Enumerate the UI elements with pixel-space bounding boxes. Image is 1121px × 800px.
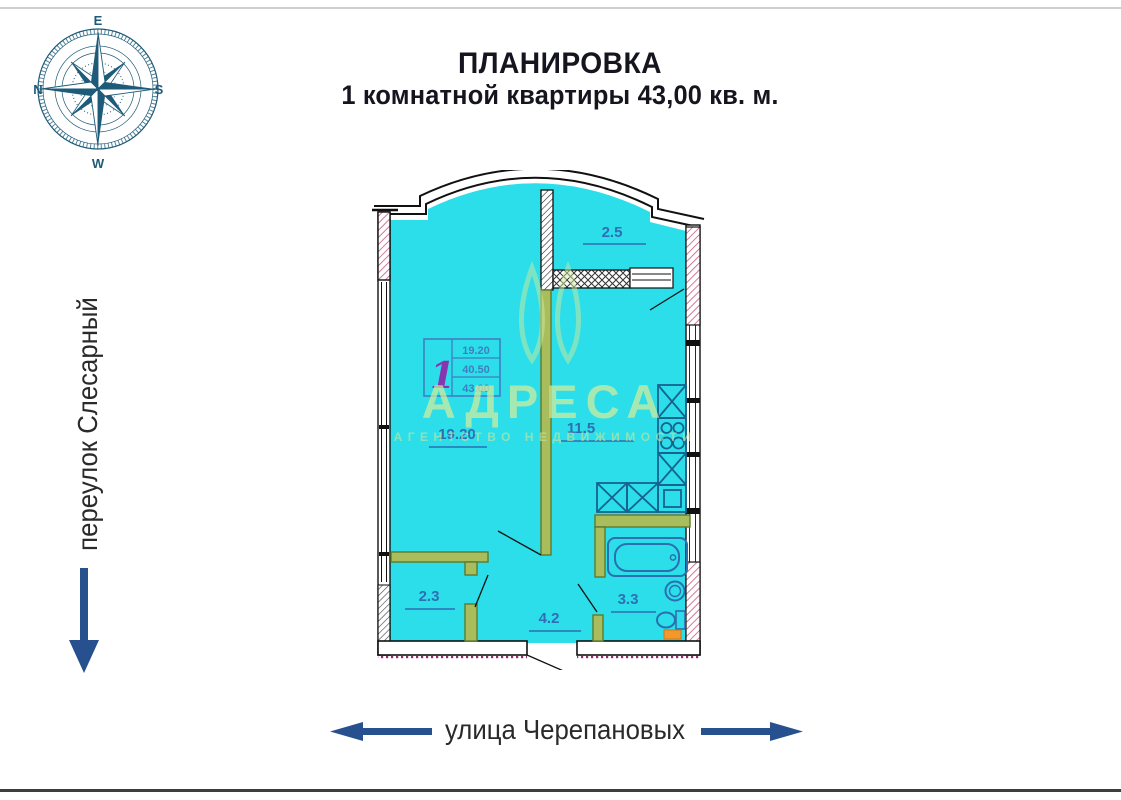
- label-hallway: 4.2: [539, 610, 560, 627]
- compass-letter-right: S: [155, 82, 164, 97]
- floorplan-page: { "page": { "title_line1": "ПЛАНИРОВКА",…: [0, 0, 1121, 800]
- page-title: ПЛАНИРОВКА 1 комнатной квартиры 43,00 кв…: [306, 48, 814, 110]
- bottom-divider-line: [0, 789, 1121, 792]
- wall-bottom: [378, 641, 700, 661]
- label-balcony: 2.5: [602, 224, 623, 241]
- street-label-vertical: переулок Слесарный: [72, 286, 104, 562]
- compass-letter-top: E: [94, 13, 103, 28]
- top-divider-line: [0, 7, 1121, 9]
- compass-letter-left: N: [33, 82, 42, 97]
- label-wardrobe: 2.3: [419, 588, 440, 605]
- stamp-row1: 19.20: [462, 345, 490, 357]
- wall-divider: [541, 190, 553, 555]
- watermark-name: АДРЕСА: [422, 375, 669, 428]
- title-line2: 1 комнатной квартиры 43,00 кв. м.: [306, 80, 814, 110]
- street-label-bottom: улица Черепановых: [436, 714, 694, 746]
- title-line1: ПЛАНИРОВКА: [306, 48, 814, 80]
- label-bathroom: 3.3: [618, 591, 639, 608]
- watermark-subtitle: АГЕНТСТВО НЕДВИЖИМОСТИ: [394, 430, 697, 444]
- water-heater-icon: [664, 630, 681, 639]
- floor-plan: 1 19.20 40.50 43.00 2.5 19.20 11.5 2.3 4…: [370, 170, 715, 670]
- compass-rose-icon: E S W N: [32, 13, 164, 171]
- compass-letter-bottom: W: [92, 156, 105, 171]
- arrow-left-icon: [330, 720, 432, 742]
- arrow-down-icon: [66, 568, 102, 673]
- arrow-right-icon: [701, 720, 803, 742]
- wall-left: [378, 212, 390, 655]
